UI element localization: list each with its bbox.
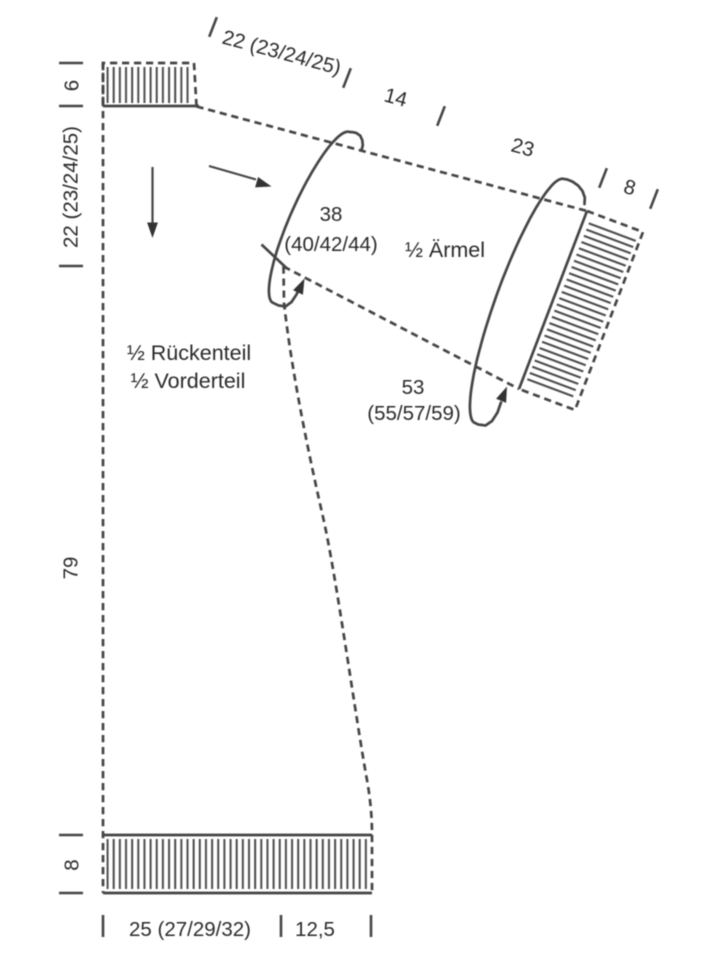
svg-text:53: 53 [402, 376, 425, 399]
svg-text:½ Rückenteil: ½ Rückenteil [127, 341, 251, 365]
svg-text:22 (23/24/25): 22 (23/24/25) [220, 26, 344, 80]
svg-text:6: 6 [61, 80, 84, 91]
svg-text:25 (27/29/32): 25 (27/29/32) [129, 918, 251, 941]
svg-text:22 (23/24/25): 22 (23/24/25) [60, 126, 83, 248]
svg-text:12,5: 12,5 [295, 918, 335, 941]
svg-text:½ Vorderteil: ½ Vorderteil [131, 369, 246, 393]
svg-text:23: 23 [509, 134, 537, 162]
svg-text:(40/42/44): (40/42/44) [284, 233, 377, 256]
svg-text:38: 38 [320, 203, 343, 226]
svg-text:79: 79 [60, 557, 83, 580]
svg-text:8: 8 [61, 859, 84, 870]
svg-text:14: 14 [382, 84, 410, 112]
svg-text:(55/57/59): (55/57/59) [367, 402, 460, 425]
svg-text:½ Ärmel: ½ Ärmel [405, 238, 485, 262]
svg-text:8: 8 [621, 175, 638, 200]
